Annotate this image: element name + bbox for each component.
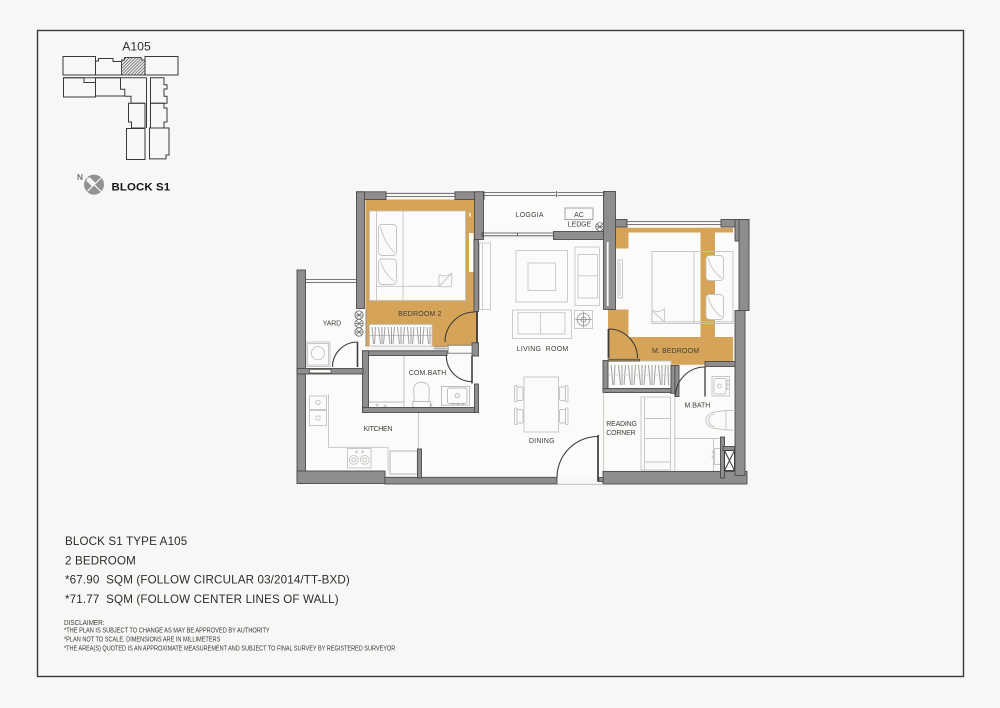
svg-text:LIVING ROOM: LIVING ROOM — [517, 346, 569, 353]
svg-text:2 BEDROOM: 2 BEDROOM — [65, 554, 136, 567]
svg-text:BEDROOM 2: BEDROOM 2 — [398, 311, 441, 318]
svg-text:BLOCK S1 TYPE A105: BLOCK S1 TYPE A105 — [65, 535, 187, 548]
svg-text:*THE PLAN IS SUBJECT TO CHANGE: *THE PLAN IS SUBJECT TO CHANGE AS MAY BE… — [64, 625, 270, 634]
svg-text:COM.BATH: COM.BATH — [409, 370, 447, 377]
svg-text:AC: AC — [574, 212, 584, 219]
svg-text:CORNER: CORNER — [606, 430, 635, 437]
svg-text:*PLAN NOT TO SCALE. DIMENSIONS: *PLAN NOT TO SCALE. DIMENSIONS ARE IN MI… — [64, 635, 220, 644]
svg-text:*THE AREA(S) QUOTED IS AN APPR: *THE AREA(S) QUOTED IS AN APPROXIMATE ME… — [64, 644, 395, 653]
svg-text:N: N — [77, 172, 83, 182]
svg-text:M.BATH: M.BATH — [685, 402, 711, 409]
svg-text:DINING: DINING — [529, 438, 555, 445]
svg-text:KITCHEN: KITCHEN — [364, 426, 393, 433]
svg-text:READING: READING — [606, 421, 637, 428]
svg-text:*71.77 SQM (FOLLOW CENTER LIN: *71.77 SQM (FOLLOW CENTER LINES OF WALL) — [65, 593, 339, 606]
svg-text:A105: A105 — [122, 40, 151, 54]
svg-text:YARD: YARD — [323, 321, 341, 328]
svg-text:M. BEDROOM: M. BEDROOM — [652, 348, 699, 355]
svg-text:*67.90 SQM (FOLLOW CIRCULAR 0: *67.90 SQM (FOLLOW CIRCULAR 03/2014/TT-B… — [65, 574, 350, 587]
svg-text:LOGGIA: LOGGIA — [516, 212, 544, 219]
svg-text:BLOCK S1: BLOCK S1 — [112, 181, 171, 193]
svg-text:LEDGE: LEDGE — [568, 222, 592, 229]
